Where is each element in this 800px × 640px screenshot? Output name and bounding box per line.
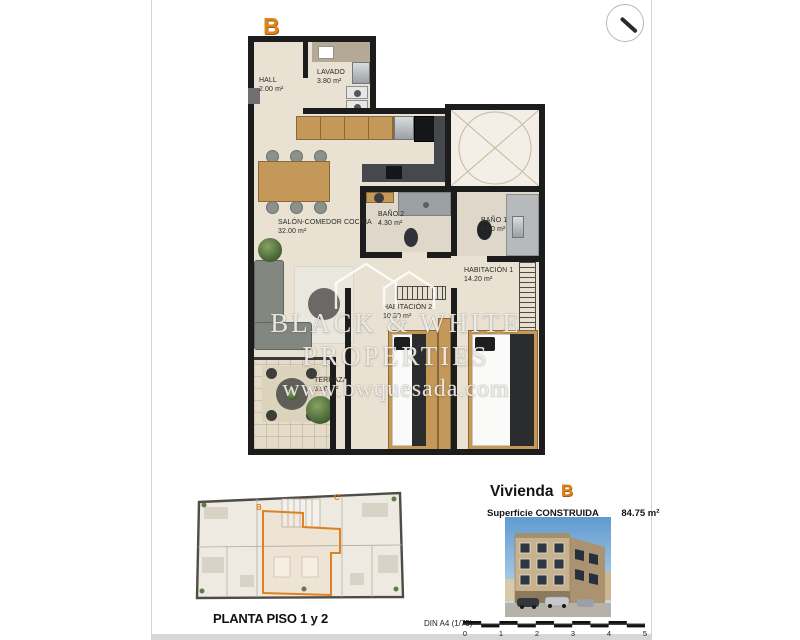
room-area: 2.00 m²	[259, 85, 283, 94]
bath2-shower	[398, 192, 451, 216]
kitchen-cooktop	[386, 166, 402, 179]
lavado-sink	[318, 46, 334, 59]
wall-segment	[445, 104, 451, 192]
kitchen-fridge	[394, 116, 414, 140]
door-arc	[0, 179, 47, 230]
room-name: HABITACIÓN 1	[464, 266, 513, 275]
unit-mark: B	[256, 503, 262, 512]
page-left-border	[151, 0, 152, 640]
dining-chair	[266, 201, 279, 214]
room-label-hab1: HABITACIÓN 1 14.20 m²	[464, 266, 513, 284]
mini-plan-caption: PLANTA PISO 1 y 2	[213, 611, 328, 626]
room-name: BAÑO 2	[378, 210, 404, 219]
terrace-chair	[266, 410, 277, 421]
scale-bar	[463, 620, 647, 629]
bath1-column	[512, 216, 524, 238]
house-logo-icon	[326, 261, 456, 311]
wall-segment	[451, 186, 457, 256]
plant-icon	[258, 238, 282, 262]
kitchen-counter-horizontal	[362, 164, 451, 182]
bath2-toilet-icon	[404, 228, 418, 247]
washer-1	[346, 86, 368, 99]
page-right-border	[651, 0, 652, 640]
wall-segment	[248, 36, 376, 42]
vivienda-title-prefix: Vivienda	[490, 483, 553, 500]
room-area: 14.20 m²	[464, 275, 513, 284]
washer-door-icon	[354, 90, 361, 97]
room-name: LAVADO	[317, 68, 345, 77]
scale-tick: 4	[604, 629, 614, 638]
room-label-lavado: LAVADO 3.80 m²	[317, 68, 345, 86]
wall-segment	[303, 36, 308, 78]
wall-segment	[487, 256, 545, 262]
kitchen-cabinets	[296, 116, 394, 140]
room-name: SALÓN-COMEDOR COCINA	[278, 218, 372, 227]
wall-segment	[427, 252, 451, 258]
room-label-salon: SALÓN-COMEDOR COCINA 32.00 m²	[278, 218, 372, 236]
shower-drain-icon	[423, 202, 429, 208]
wall-segment	[360, 252, 402, 258]
dining-chair	[290, 201, 303, 214]
lightwell-floor	[451, 110, 539, 186]
wall-segment	[303, 108, 451, 114]
surface-value: 84.75 m²	[621, 508, 659, 519]
room-label-bano1: BAÑO 1 4.00 m²	[481, 216, 507, 234]
room-area: 4.30 m²	[378, 219, 404, 228]
vivienda-title: Vivienda B	[490, 481, 573, 501]
watermark-line3: www.bwquesada.com	[248, 376, 544, 403]
room-area: 32.00 m²	[278, 227, 372, 236]
room-name: BAÑO 1	[481, 216, 507, 225]
vivienda-title-letter: B	[561, 481, 573, 500]
room-area: 3.80 m²	[317, 77, 345, 86]
lavado-appliance	[352, 62, 370, 84]
zoom-icon-handle	[620, 17, 638, 34]
scale-tick: 3	[568, 629, 578, 638]
wall-segment	[248, 449, 545, 455]
watermark-line1: BLACK & WHITE	[248, 308, 544, 339]
wall-segment	[370, 36, 376, 114]
room-name: HALL	[259, 76, 283, 85]
scale-tick: 5	[640, 629, 650, 638]
unit-mark: C	[334, 493, 340, 502]
room-label-bano2: BAÑO 2 4.30 m²	[378, 210, 404, 228]
lightwell-cross	[451, 110, 539, 186]
plan-sheet: B	[0, 0, 800, 640]
scale-tick: 2	[532, 629, 542, 638]
building-photo	[505, 517, 611, 617]
scale-tick: 1	[496, 629, 506, 638]
dining-table	[258, 161, 330, 202]
room-area: 4.00 m²	[481, 225, 507, 234]
wall-segment	[445, 104, 545, 110]
dining-chair	[314, 201, 327, 214]
mini-floorplan: B C	[182, 487, 428, 607]
kitchen-oven	[414, 116, 436, 142]
bath2-sink-icon	[374, 193, 384, 203]
watermark-line2: PROPERTIES	[248, 341, 544, 372]
scale-tick: 0	[460, 629, 470, 638]
zoom-icon[interactable]	[606, 4, 644, 42]
room-label-hall: HALL 2.00 m²	[259, 76, 283, 94]
